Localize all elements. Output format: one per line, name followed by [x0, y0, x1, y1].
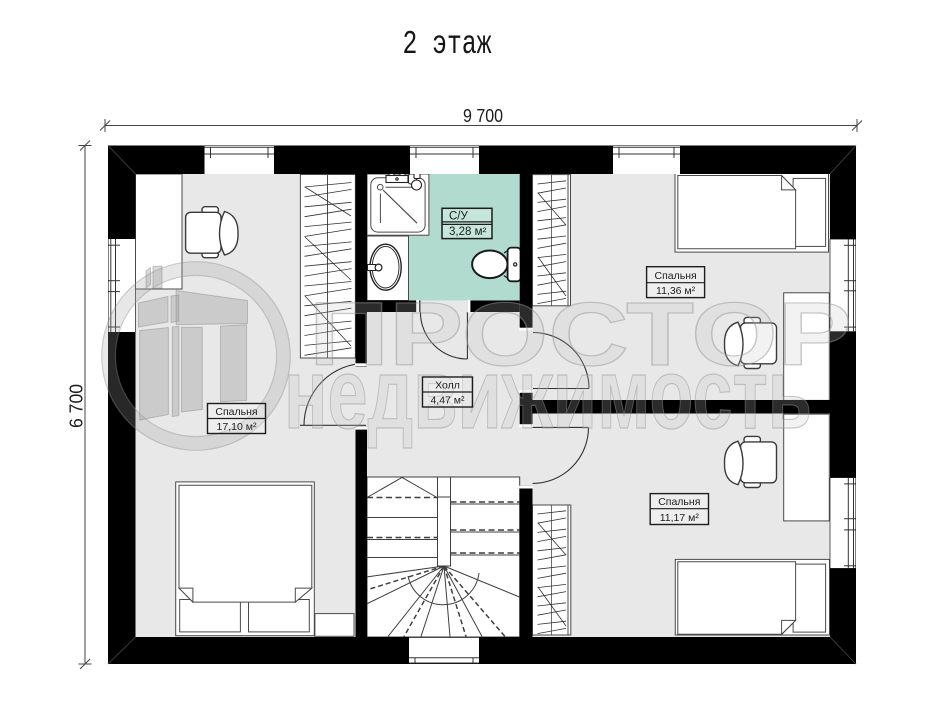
svg-text:6 700: 6 700 [67, 384, 87, 428]
svg-text:17,10 м²: 17,10 м² [217, 421, 257, 433]
svg-text:Спальня: Спальня [654, 270, 696, 282]
svg-text:Спальня: Спальня [658, 496, 700, 508]
svg-text:2 этаж: 2 этаж [403, 26, 492, 63]
svg-text:11,36 м²: 11,36 м² [656, 285, 696, 297]
svg-text:С/У: С/У [449, 210, 469, 222]
svg-text:4,47 м²: 4,47 м² [430, 395, 465, 407]
svg-text:9 700: 9 700 [463, 106, 503, 126]
svg-text:Спальня: Спальня [215, 406, 257, 418]
svg-text:недвижимость: недвижимость [284, 338, 812, 450]
svg-text:11,17 м²: 11,17 м² [660, 512, 700, 524]
svg-text:Холл: Холл [435, 380, 460, 392]
svg-text:3,28 м²: 3,28 м² [449, 226, 486, 238]
